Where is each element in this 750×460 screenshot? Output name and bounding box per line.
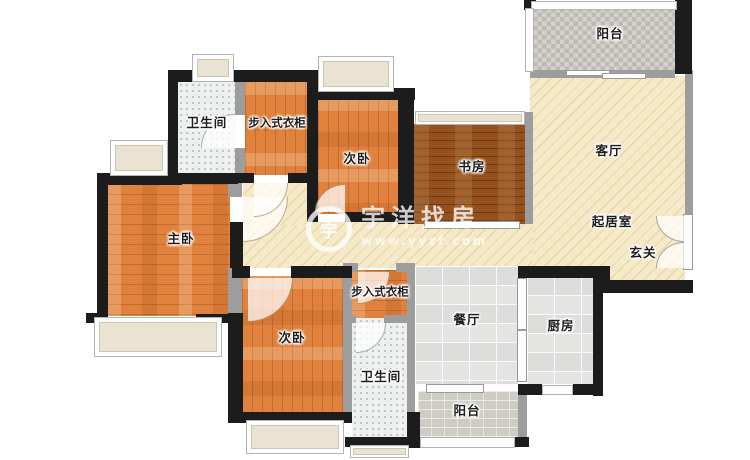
wall-segment xyxy=(235,148,245,175)
wall-segment xyxy=(515,437,529,447)
window xyxy=(420,437,515,448)
label-balcony-bottom: 阳台 xyxy=(453,405,480,418)
wall-segment xyxy=(407,412,420,448)
room-balcony-top xyxy=(533,8,675,74)
floor-plan: 阳台 客厅 起居室 玄关 书房 次卧 步入式衣柜 卫生间 主卧 次卧 步入式衣柜… xyxy=(0,0,750,460)
wall-segment xyxy=(384,315,407,323)
label-bathroom-top: 卫生间 xyxy=(187,117,228,130)
label-walkin-closet-top: 步入式衣柜 xyxy=(248,117,306,129)
label-dining-room: 餐厅 xyxy=(453,314,480,327)
window xyxy=(318,56,394,92)
study-sliding-door xyxy=(424,221,520,229)
label-walkin-closet-bottom: 步入式衣柜 xyxy=(351,286,409,298)
label-bedroom-second-top: 次卧 xyxy=(343,153,370,166)
entry-door-panel xyxy=(683,214,693,270)
wall-segment xyxy=(518,384,542,395)
room-study xyxy=(412,124,525,224)
wall-segment xyxy=(228,313,243,423)
wall-segment xyxy=(345,212,398,222)
room-master-bedroom xyxy=(108,184,230,316)
label-kitchen: 厨房 xyxy=(547,320,574,333)
label-bedroom-second-bottom: 次卧 xyxy=(278,332,305,345)
window xyxy=(525,8,534,72)
wall-segment xyxy=(230,222,243,268)
wall-segment xyxy=(307,212,315,222)
window xyxy=(415,111,525,125)
wall-segment xyxy=(518,266,603,278)
wall-segment xyxy=(168,70,194,82)
wall-segment xyxy=(573,384,603,395)
wall-segment xyxy=(352,315,356,323)
wall-segment xyxy=(316,92,400,100)
wall-segment xyxy=(230,70,312,82)
wall-segment xyxy=(597,280,693,293)
wall-segment xyxy=(525,112,533,224)
label-balcony-top: 阳台 xyxy=(596,28,623,41)
label-master-bedroom: 主卧 xyxy=(167,233,194,246)
wall-segment xyxy=(288,173,315,183)
kitchen-sliding-door xyxy=(517,330,527,382)
label-bathroom-bottom: 卫生间 xyxy=(361,371,402,384)
wall-segment xyxy=(685,70,693,216)
label-living-room: 客厅 xyxy=(595,145,622,158)
wall-segment xyxy=(518,395,527,438)
wall-segment xyxy=(675,0,692,74)
window xyxy=(246,420,344,454)
wall-segment xyxy=(291,266,352,278)
wall-segment xyxy=(398,88,414,224)
wall-segment xyxy=(168,70,178,183)
label-entrance-hall: 玄关 xyxy=(629,247,656,260)
balcony-sliding-door xyxy=(602,73,646,79)
kitchen-sliding-door xyxy=(517,278,527,330)
dining-balcony-door xyxy=(426,384,484,393)
window xyxy=(192,54,234,82)
window xyxy=(542,385,573,395)
wall-segment xyxy=(228,183,242,197)
wall-segment xyxy=(176,173,238,184)
window xyxy=(531,1,677,10)
wall-segment xyxy=(232,266,250,278)
window xyxy=(94,317,222,357)
label-study: 书房 xyxy=(458,161,485,174)
wall-segment xyxy=(97,173,108,322)
window xyxy=(350,445,409,458)
wall-segment xyxy=(235,82,245,115)
window xyxy=(110,140,168,176)
label-sitting-area: 起居室 xyxy=(592,216,633,229)
